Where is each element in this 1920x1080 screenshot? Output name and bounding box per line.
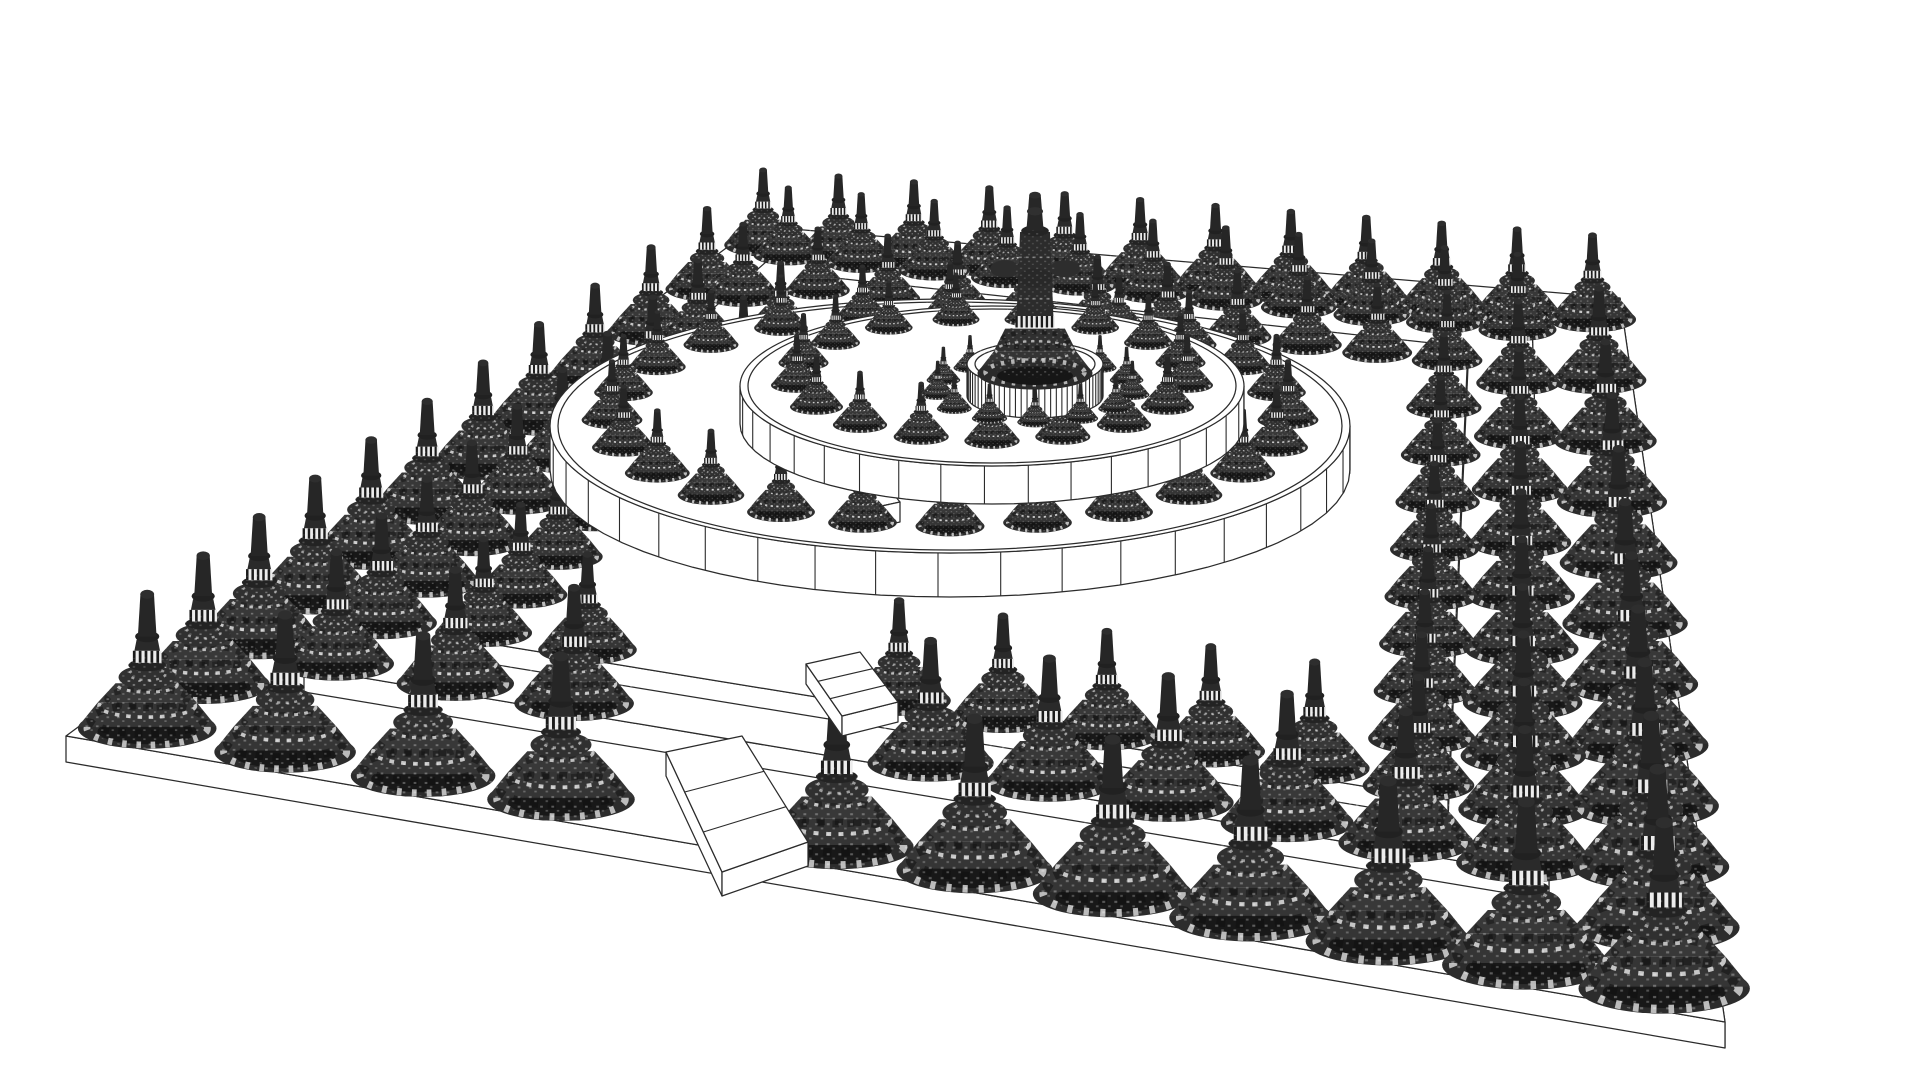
scene-root	[66, 167, 1750, 1048]
scene-svg	[0, 0, 1920, 1080]
wireframe-render	[0, 0, 1920, 1080]
